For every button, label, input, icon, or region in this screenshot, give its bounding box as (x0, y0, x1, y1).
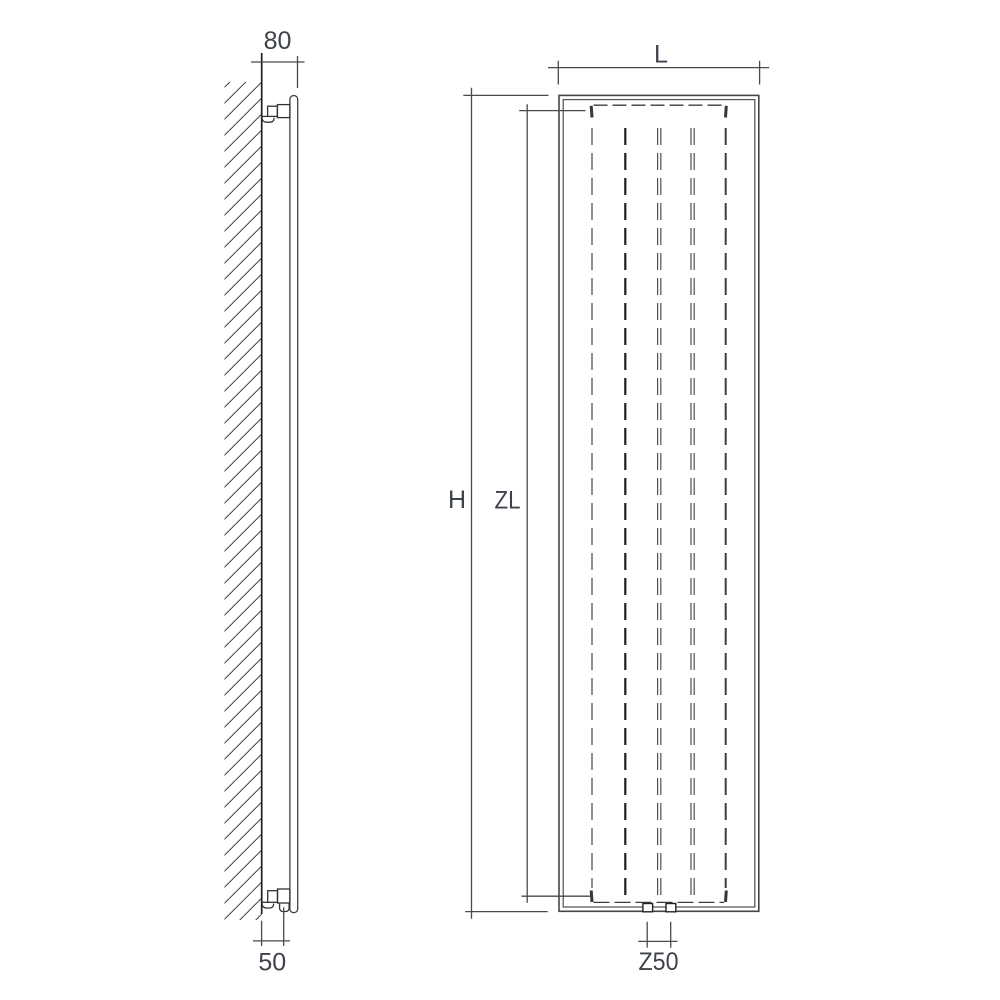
svg-text:Z50: Z50 (639, 948, 679, 976)
svg-text:50: 50 (258, 949, 286, 977)
svg-text:L: L (654, 41, 668, 69)
svg-text:H: H (448, 486, 466, 514)
svg-text:80: 80 (264, 27, 292, 55)
svg-text:ZL: ZL (495, 487, 521, 515)
